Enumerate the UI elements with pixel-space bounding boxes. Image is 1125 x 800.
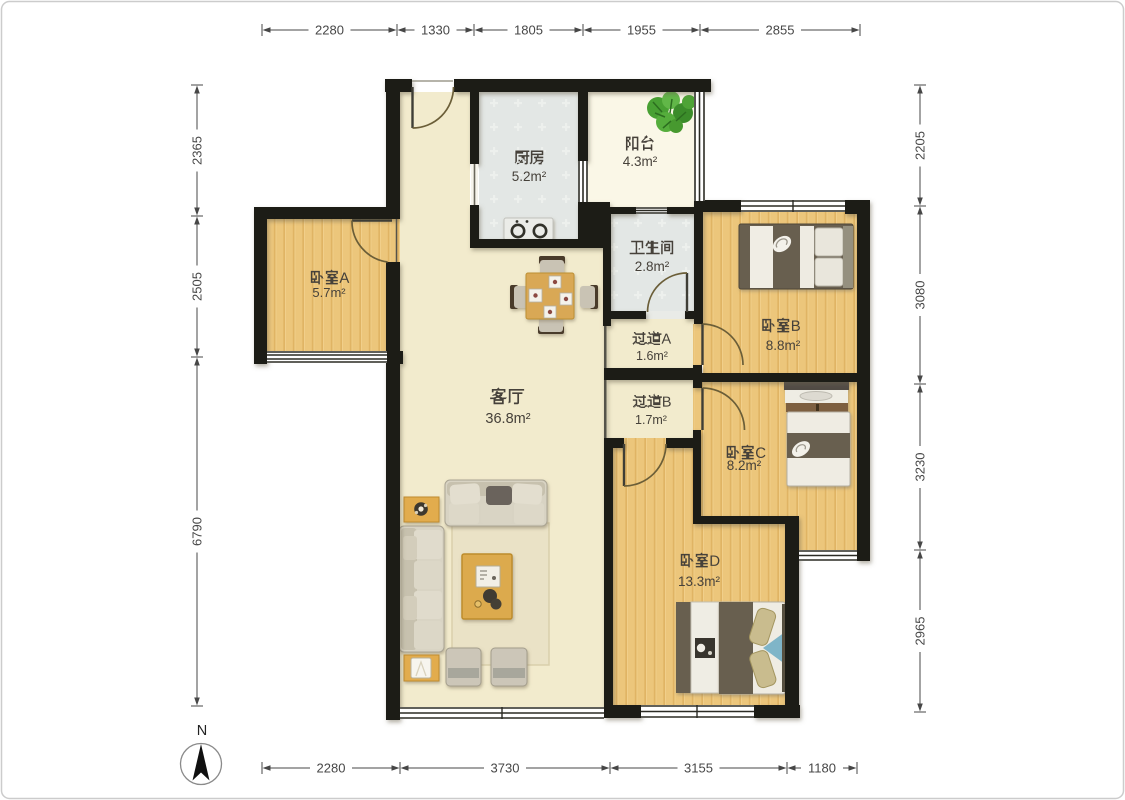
svg-text:3080: 3080 [913, 281, 928, 310]
svg-text:6790: 6790 [190, 517, 205, 546]
svg-text:1.6m²: 1.6m² [636, 349, 668, 363]
svg-text:2205: 2205 [913, 131, 928, 160]
svg-text:2505: 2505 [190, 272, 205, 301]
svg-text:2855: 2855 [766, 23, 795, 38]
svg-text:N: N [197, 723, 207, 739]
svg-text:5.7m²: 5.7m² [312, 285, 346, 300]
svg-text:2.8m²: 2.8m² [635, 259, 670, 274]
svg-text:8.8m²: 8.8m² [766, 338, 801, 353]
svg-text:36.8m²: 36.8m² [485, 411, 530, 427]
svg-text:2280: 2280 [315, 23, 344, 38]
svg-text:3730: 3730 [491, 761, 520, 776]
svg-text:3155: 3155 [684, 761, 713, 776]
svg-text:2365: 2365 [190, 136, 205, 165]
svg-text:1.7m²: 1.7m² [635, 413, 667, 427]
svg-text:8.2m²: 8.2m² [727, 458, 762, 473]
svg-text:5.2m²: 5.2m² [512, 169, 547, 184]
svg-text:1805: 1805 [514, 23, 543, 38]
svg-text:4.3m²: 4.3m² [623, 154, 658, 169]
svg-text:1180: 1180 [808, 761, 836, 776]
svg-text:3230: 3230 [913, 453, 928, 482]
svg-text:2280: 2280 [317, 761, 346, 776]
svg-text:13.3m²: 13.3m² [678, 574, 721, 589]
svg-text:2965: 2965 [913, 617, 928, 646]
svg-text:1330: 1330 [421, 23, 450, 38]
svg-text:1955: 1955 [627, 23, 656, 38]
